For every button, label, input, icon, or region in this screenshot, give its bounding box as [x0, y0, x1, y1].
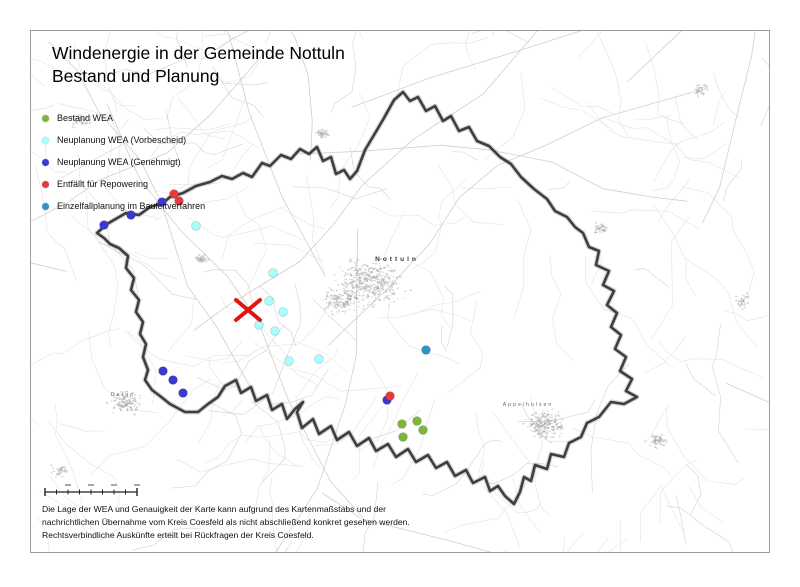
wea-marker-genehmigt — [100, 221, 109, 230]
legend-label-repowering: Entfällt für Repowering — [57, 179, 148, 189]
wea-marker-vorbescheid — [192, 222, 201, 231]
repowering-dot-icon — [42, 181, 49, 188]
scale-bar — [45, 484, 140, 496]
wea-marker-vorbescheid — [315, 355, 324, 364]
legend-item-einzelfall: Einzelfallplanung im Bauleitverfahren — [42, 195, 205, 217]
wea-marker-vorbescheid — [271, 327, 280, 336]
map-title: Windenergie in der Gemeinde Nottuln Best… — [52, 42, 345, 88]
einzelfall-dot-icon — [42, 203, 49, 210]
wea-marker-genehmigt — [169, 376, 178, 385]
wea-marker-vorbescheid — [255, 321, 264, 330]
disclaimer-line-1: Die Lage der WEA und Genauigkeit der Kar… — [42, 503, 410, 516]
wea-marker-einzelfall — [422, 346, 431, 355]
legend-label-vorbescheid: Neuplanung WEA (Vorbescheid) — [57, 135, 186, 145]
map-page: NottulnDarupAppelhülsen Windenergie in d… — [0, 0, 800, 587]
repowering-cross-icon — [236, 300, 260, 320]
place-label-appelhülsen: Appelhülsen — [503, 402, 554, 408]
wea-marker-vorbescheid — [269, 269, 278, 278]
disclaimer-line-3: Rechtsverbindliche Auskünfte erteilt bei… — [42, 529, 410, 542]
bestand-dot-icon — [42, 115, 49, 122]
wea-marker-repowering — [386, 392, 395, 401]
place-label-darup: Darup — [111, 392, 135, 398]
wea-marker-bestand — [413, 417, 422, 426]
legend-item-repowering: Entfällt für Repowering — [42, 173, 205, 195]
legend-item-vorbescheid: Neuplanung WEA (Vorbescheid) — [42, 129, 205, 151]
legend-label-bestand: Bestand WEA — [57, 113, 113, 123]
place-label-nottuln: Nottuln — [375, 256, 419, 263]
wea-marker-vorbescheid — [265, 297, 274, 306]
wea-marker-bestand — [399, 433, 408, 442]
disclaimer-note: Die Lage der WEA und Genauigkeit der Kar… — [42, 503, 410, 542]
legend-item-bestand: Bestand WEA — [42, 107, 205, 129]
wea-marker-vorbescheid — [285, 357, 294, 366]
wea-marker-bestand — [398, 420, 407, 429]
genehmigt-dot-icon — [42, 159, 49, 166]
wea-marker-genehmigt — [159, 367, 168, 376]
wea-markers — [100, 190, 431, 442]
legend-label-genehmigt: Neuplanung WEA (Genehmigt) — [57, 157, 181, 167]
wea-marker-vorbescheid — [279, 308, 288, 317]
legend-item-genehmigt: Neuplanung WEA (Genehmigt) — [42, 151, 205, 173]
map-title-line2: Bestand und Planung — [52, 65, 345, 88]
vorbescheid-dot-icon — [42, 137, 49, 144]
wea-marker-bestand — [419, 426, 428, 435]
disclaimer-line-2: nachrichtlichen Übernahme vom Kreis Coes… — [42, 516, 410, 529]
map-title-line1: Windenergie in der Gemeinde Nottuln — [52, 42, 345, 65]
legend-label-einzelfall: Einzelfallplanung im Bauleitverfahren — [57, 201, 205, 211]
legend: Bestand WEA Neuplanung WEA (Vorbescheid)… — [42, 107, 205, 217]
wea-marker-genehmigt — [179, 389, 188, 398]
